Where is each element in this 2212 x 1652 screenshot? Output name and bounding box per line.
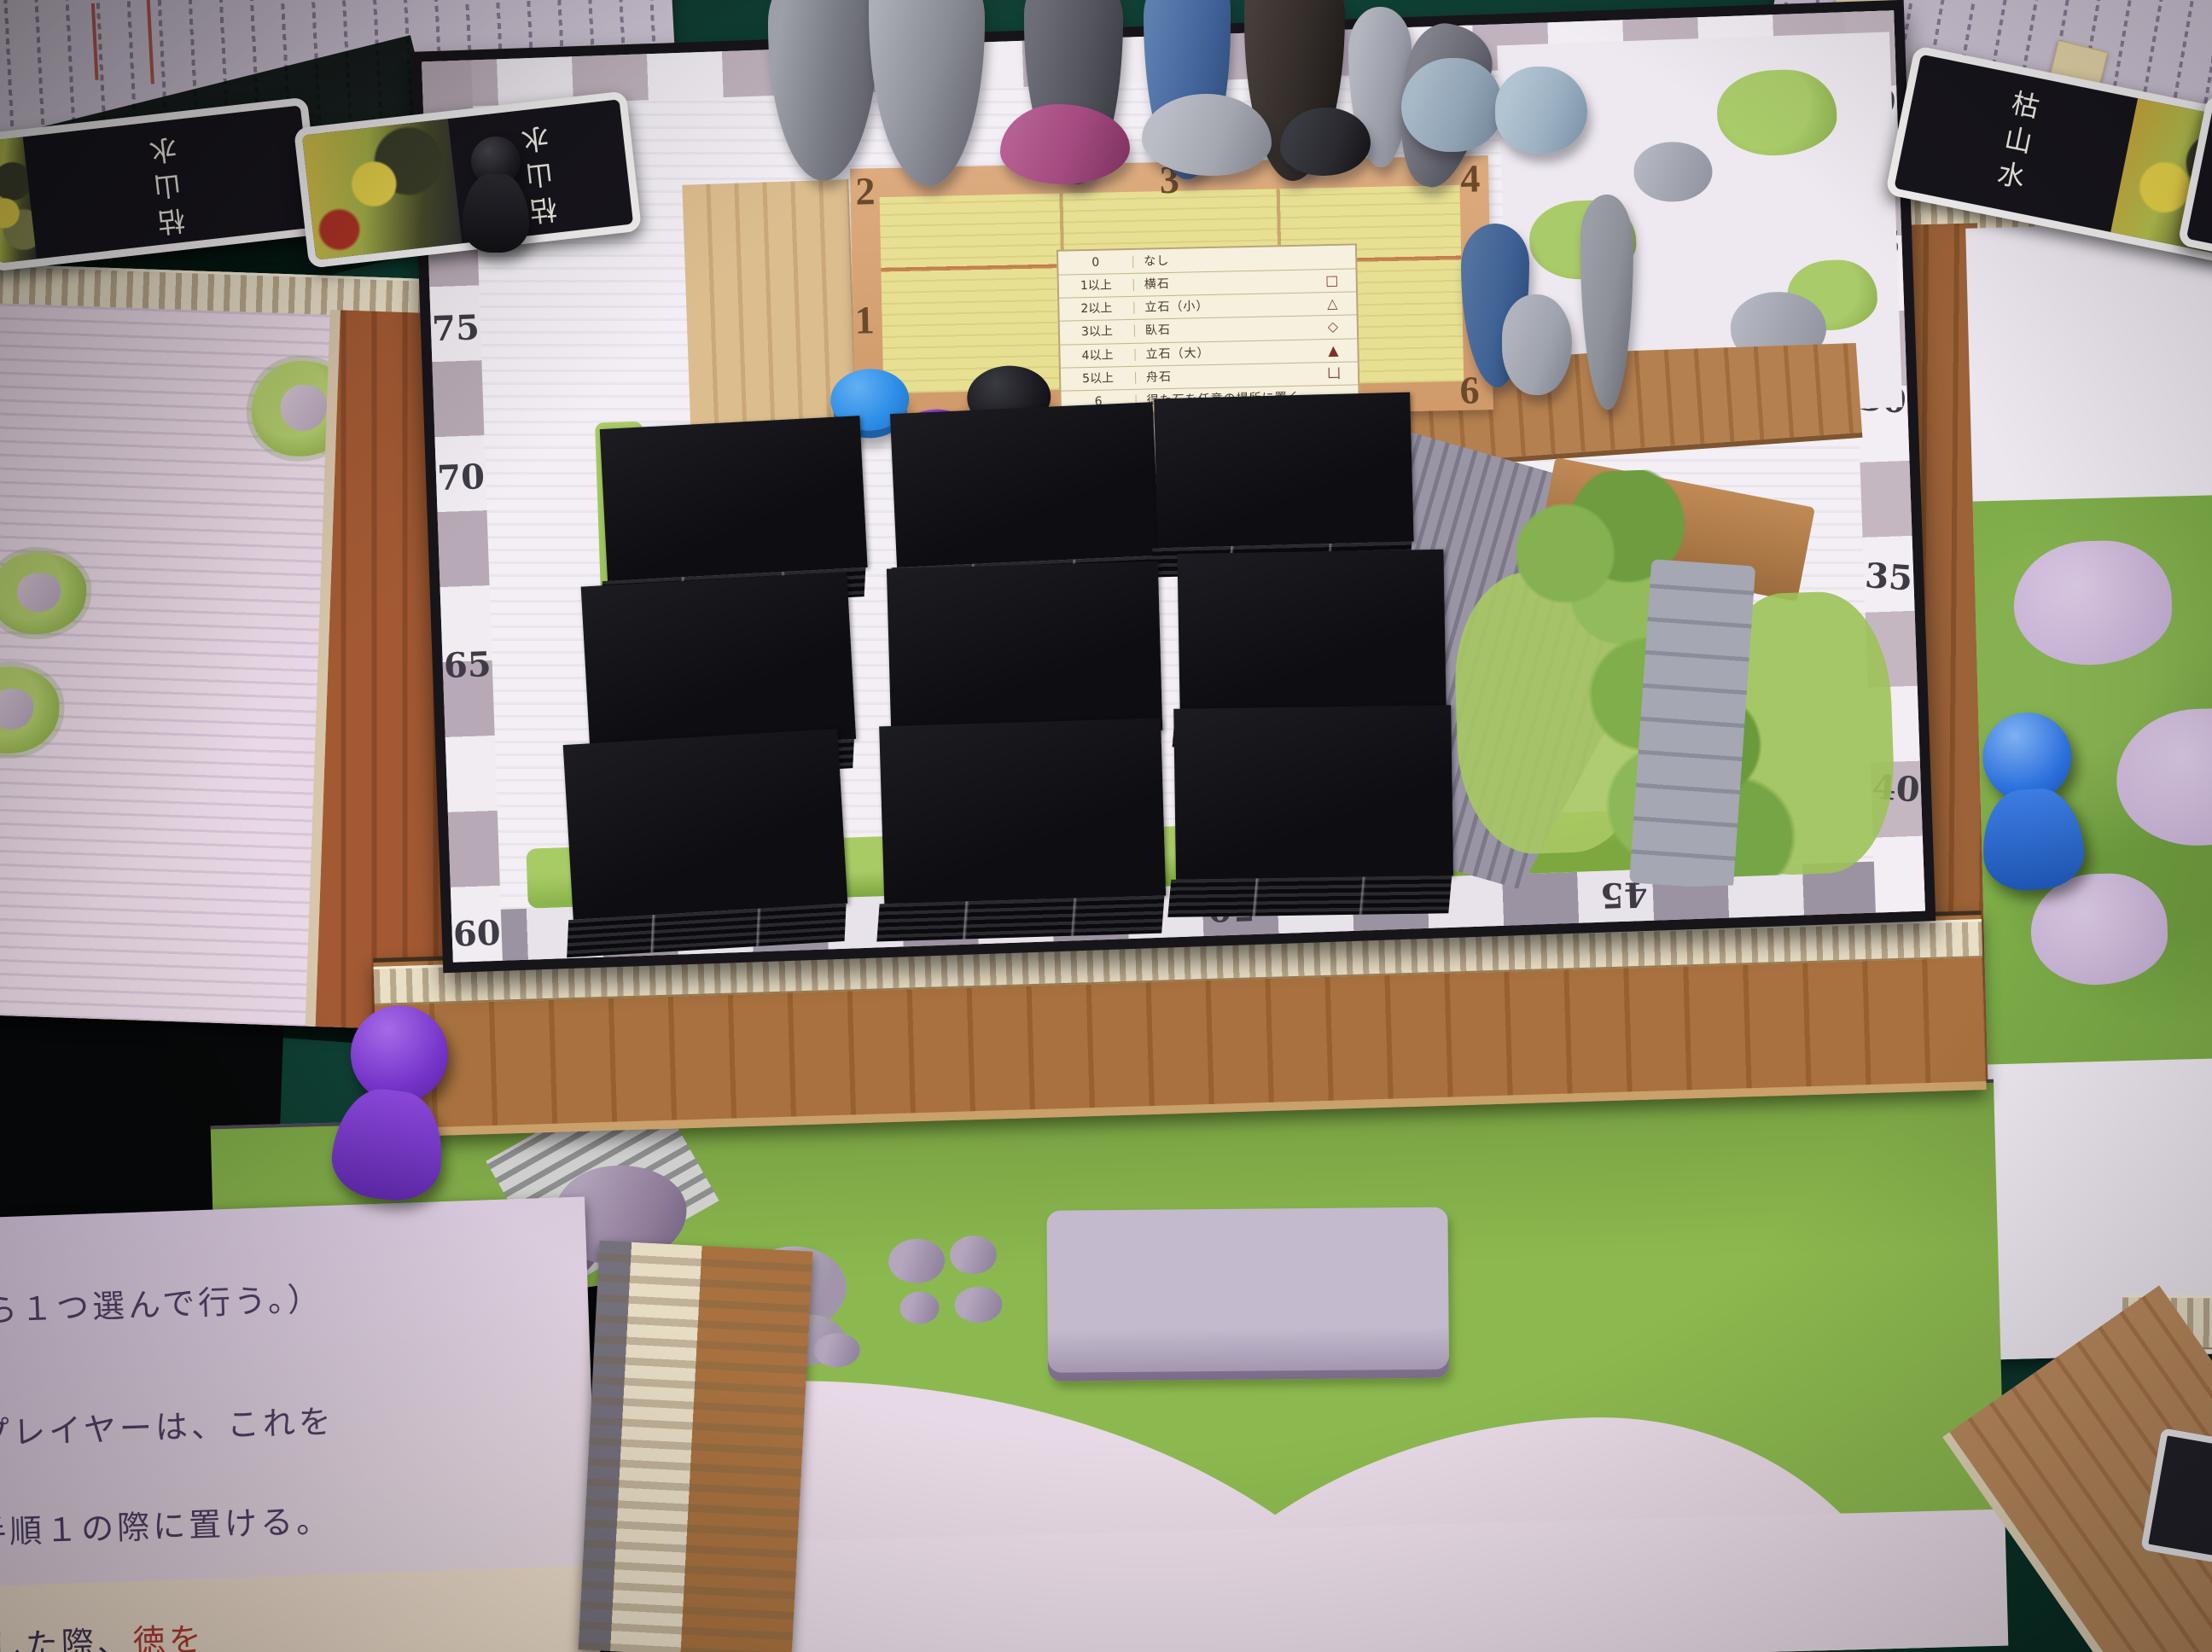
stone-count: 5以上	[1061, 372, 1136, 386]
stone-count: 3以上	[1060, 325, 1135, 339]
u-shape-icon: 凵	[1310, 366, 1358, 381]
aid-card-text: プレイヤーは、これを	[0, 1395, 335, 1455]
stone-count: 2以上	[1059, 302, 1134, 316]
sand-patch	[2115, 707, 2212, 847]
rock-gray[interactable]	[1502, 294, 1572, 395]
board-frame-corner-piece	[579, 1241, 813, 1652]
purple-pawn[interactable]	[326, 999, 462, 1206]
pawn-body	[1979, 786, 2087, 893]
track-number-60: 60	[451, 913, 503, 955]
aid-card-text: 手順１の際に置ける。	[0, 1494, 333, 1554]
triangle-filled-icon: ▲	[1309, 343, 1357, 358]
stone-count: 1以上	[1059, 279, 1134, 293]
aid-card-text: した際、徳を	[0, 1613, 206, 1652]
tabletop-game-photo: ら１つ選んで行う。） プレイヤーは、これを 手順１の際に置ける。 した際、徳を …	[0, 0, 2212, 1652]
black-tile-stack[interactable]	[1173, 705, 1453, 880]
player-aid-card[interactable]: ら１つ選んで行う。） プレイヤーは、これを 手順１の際に置ける。 した際、徳を	[0, 1196, 602, 1652]
reference-corner-number-1: 1	[854, 300, 875, 340]
left-player-garden-board	[0, 262, 482, 1031]
black-tile-stack[interactable]	[1177, 550, 1446, 718]
stone-lookup-table: 0 なし 1以上 横石 □ 2以上 立石（小） △	[1057, 243, 1360, 415]
square-outline-icon: □	[1308, 274, 1356, 288]
stone-name: 臥石	[1135, 322, 1309, 337]
pebble-illustration	[888, 1238, 945, 1284]
black-tile-stack[interactable]	[600, 416, 868, 581]
black-tile-stack[interactable]	[563, 729, 848, 920]
boulder-blue-gray[interactable]	[1401, 58, 1502, 152]
diamond-outline-icon: ◇	[1309, 320, 1357, 334]
moss-stone	[0, 688, 34, 731]
reference-corner-number-6: 6	[1459, 370, 1480, 410]
track-number-65: 65	[442, 644, 493, 686]
reference-corner-number-2: 2	[855, 172, 876, 211]
pawn-body	[328, 1084, 450, 1206]
moss-patch	[0, 665, 61, 755]
stone-count: 4以上	[1060, 348, 1135, 362]
aid-card-text-black: した際、	[0, 1623, 134, 1652]
stone-count: 0	[1058, 255, 1133, 269]
stone-name: 立石（小）	[1134, 299, 1308, 314]
track-number-75: 75	[430, 307, 481, 349]
black-tile-stack[interactable]	[1154, 393, 1413, 549]
black-tile-stack[interactable]	[887, 561, 1162, 738]
rock-black[interactable]	[1280, 108, 1371, 176]
pebble-illustration	[813, 1333, 860, 1368]
black-tile-stack[interactable]	[581, 572, 856, 753]
none-icon	[1307, 257, 1355, 258]
moss-patch	[0, 550, 88, 636]
boulder-blue-gray[interactable]	[1495, 67, 1587, 154]
track-number-70: 70	[435, 457, 486, 498]
aid-card-text-red: 徳を	[132, 1620, 206, 1652]
stone-name: 横石	[1134, 276, 1308, 291]
pawn-body	[463, 174, 529, 253]
tile-stack-edge	[1167, 875, 1452, 917]
stone-illustration	[1633, 141, 1713, 203]
stone-name: 立石（大）	[1135, 345, 1309, 360]
stone-name: なし	[1133, 252, 1307, 267]
moss-stone	[17, 572, 61, 613]
pebble-illustration	[899, 1291, 940, 1324]
moss-stone	[280, 384, 328, 432]
aid-card-text: ら１つ選んで行う。）	[0, 1272, 324, 1331]
reference-corner-number-4: 4	[1460, 159, 1481, 198]
blue-pawn[interactable]	[1972, 709, 2088, 893]
pebble-illustration	[949, 1235, 997, 1274]
gravel-garden-area	[0, 301, 341, 1027]
card-art	[302, 119, 463, 260]
card-back-title: 枯山水	[22, 105, 314, 259]
pebble-illustration	[954, 1286, 1003, 1323]
stone-reference-board: 2 3 4 1 5 0 6 0 なし 1以上 横石 □	[850, 155, 1493, 423]
black-tile-stack[interactable]	[890, 402, 1160, 567]
black-pawn[interactable]	[461, 137, 531, 253]
flat-stone-slab-illustration	[1046, 1207, 1449, 1382]
triangle-outline-icon: △	[1308, 297, 1356, 311]
sand-patch	[2012, 539, 2174, 667]
stone-name: 舟石	[1136, 368, 1310, 383]
sand-patch	[2029, 872, 2168, 986]
black-tile-stack[interactable]	[879, 718, 1166, 905]
moss-patch	[1715, 68, 1837, 158]
